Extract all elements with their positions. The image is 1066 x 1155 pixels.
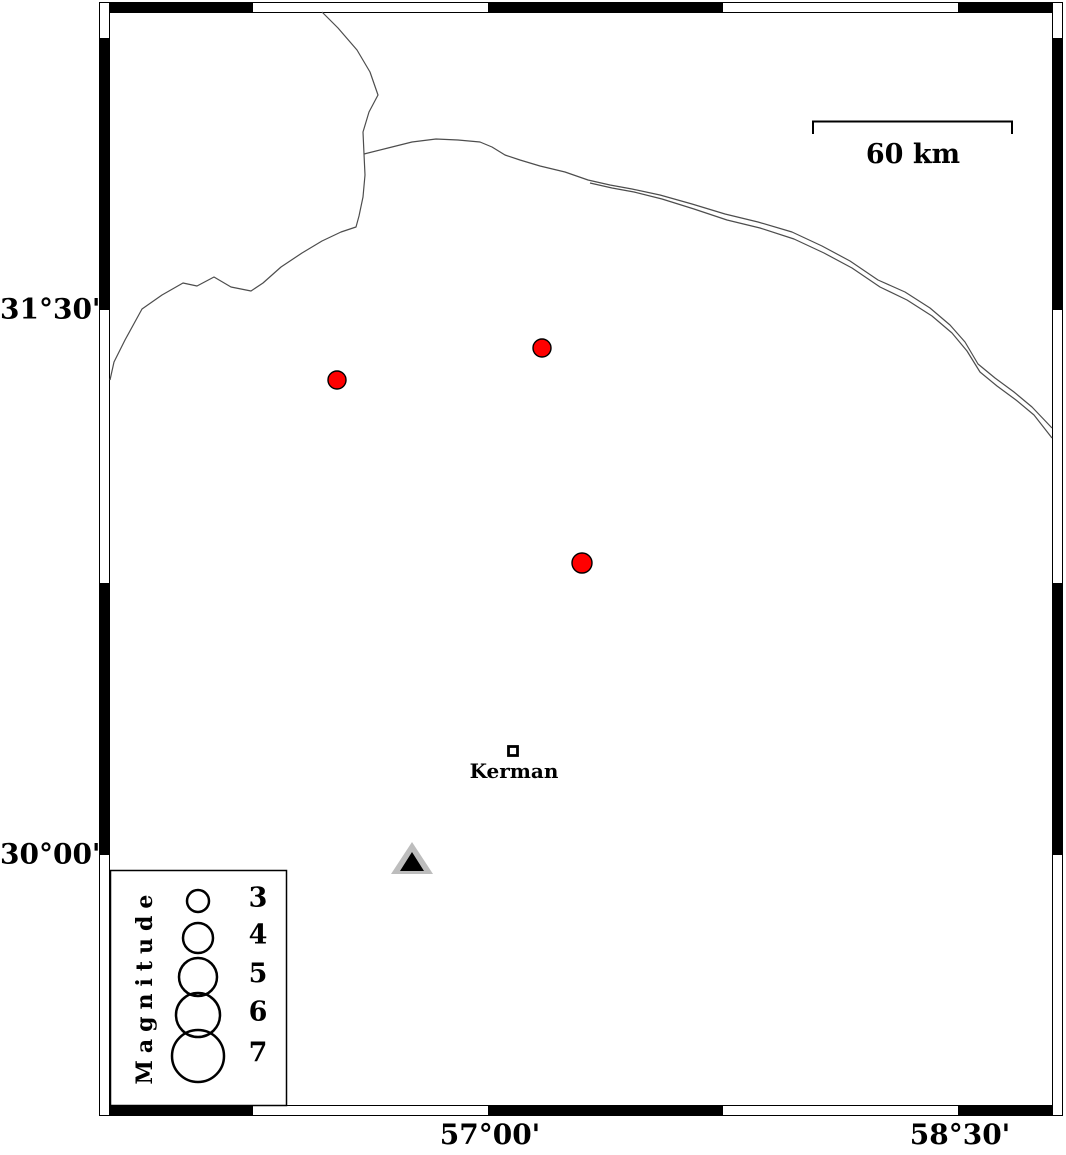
lon-tick-label-58-30: 58°30' (910, 1121, 1011, 1149)
map-figure: 31°30' 30°00' 57°00' 58°30' 60 km Kerman… (0, 0, 1066, 1155)
earthquake-marker (328, 371, 346, 389)
legend-magnitude-value: 3 (249, 884, 268, 911)
road-line-east-lower (590, 183, 1052, 438)
earthquake-layer (328, 339, 592, 573)
city-label: Kerman (470, 761, 559, 781)
legend-magnitude-value: 4 (249, 921, 268, 948)
legend-title: Magnitude (134, 888, 156, 1085)
city-marker-square (509, 747, 518, 756)
road-lines (110, 12, 1052, 438)
earthquake-marker (533, 339, 551, 357)
legend-magnitude-value: 6 (249, 998, 268, 1025)
road-line-west (110, 12, 378, 380)
lat-tick-label-31-30: 31°30' (0, 295, 88, 323)
earthquake-marker (572, 553, 592, 573)
lon-tick-label-57-00: 57°00' (440, 1121, 541, 1149)
legend-magnitude-value: 7 (249, 1039, 268, 1066)
lat-tick-label-30-00: 30°00' (0, 840, 88, 868)
scale-bar (813, 122, 1012, 135)
scale-bar-label: 60 km (866, 141, 960, 168)
station-marker (391, 842, 433, 874)
legend-magnitude-value: 5 (249, 960, 268, 987)
road-line-east-upper (364, 139, 1052, 428)
map-canvas (0, 0, 1066, 1155)
